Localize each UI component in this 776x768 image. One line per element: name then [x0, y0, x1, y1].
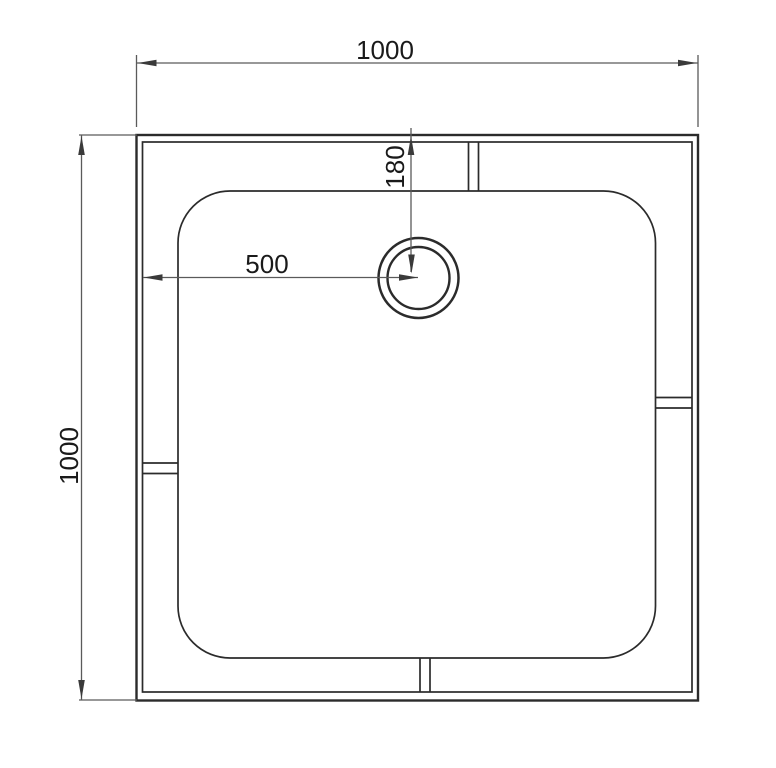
- tray-outline-group: [137, 135, 699, 701]
- arrow-left-icon: [144, 274, 163, 281]
- dim-label-drain-from-top: 180: [380, 145, 410, 188]
- tray-inner-edge: [143, 142, 693, 692]
- right-notch: [656, 398, 693, 409]
- arrow-down-icon: [408, 255, 415, 274]
- arrow-left-icon: [138, 60, 157, 67]
- dim-label-drain-from-left: 500: [245, 249, 288, 279]
- shower-tray-top-view-drawing: 1000 1000 500 180: [0, 0, 776, 768]
- technical-drawing-canvas: 1000 1000 500 180: [0, 0, 776, 768]
- arrow-right-icon: [399, 274, 418, 281]
- top-notch: [469, 142, 479, 191]
- dim-overall-width: [137, 55, 699, 127]
- dim-label-overall-depth: 1000: [54, 427, 84, 485]
- dim-overall-depth: [79, 135, 137, 700]
- arrow-right-icon: [678, 60, 697, 67]
- arrow-up-icon: [78, 136, 85, 155]
- arrow-down-icon: [78, 680, 85, 699]
- dimension-labels-group: 1000 1000 500 180: [54, 35, 414, 485]
- bottom-notch: [420, 658, 430, 692]
- tray-outer-edge: [137, 135, 699, 701]
- left-notch: [143, 463, 179, 474]
- dim-label-overall-width: 1000: [356, 35, 414, 65]
